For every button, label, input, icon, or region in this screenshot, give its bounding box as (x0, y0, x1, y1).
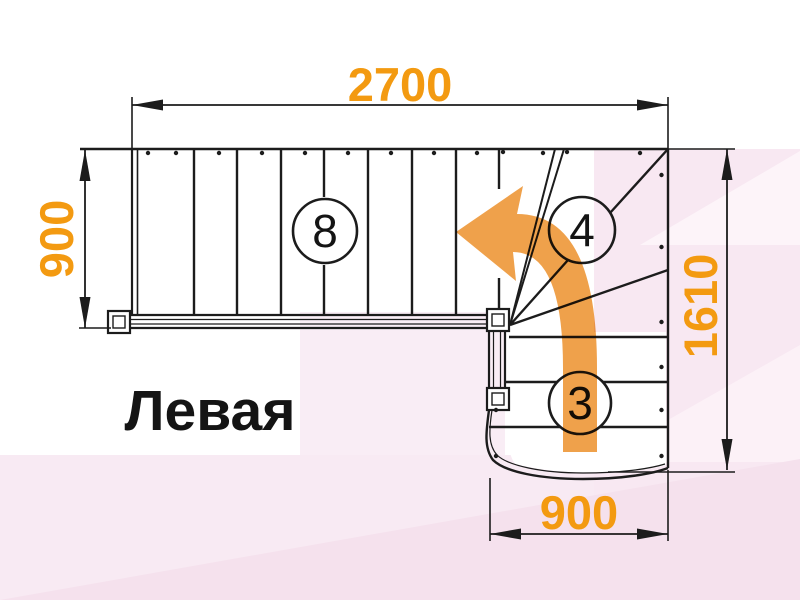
variant-title: Левая (125, 379, 296, 443)
background-polygons (0, 149, 800, 600)
dim-label-top: 2700 (348, 58, 453, 111)
upper-flight-step-count: 8 (312, 205, 338, 257)
drawing-canvas: 8 4 3 (0, 0, 800, 600)
staircase-plan-drawing: 8 4 3 (0, 0, 800, 600)
dim-label-left: 900 (30, 200, 83, 278)
dim-label-right: 1610 (674, 254, 727, 359)
dim-label-bottom: 900 (540, 486, 618, 539)
